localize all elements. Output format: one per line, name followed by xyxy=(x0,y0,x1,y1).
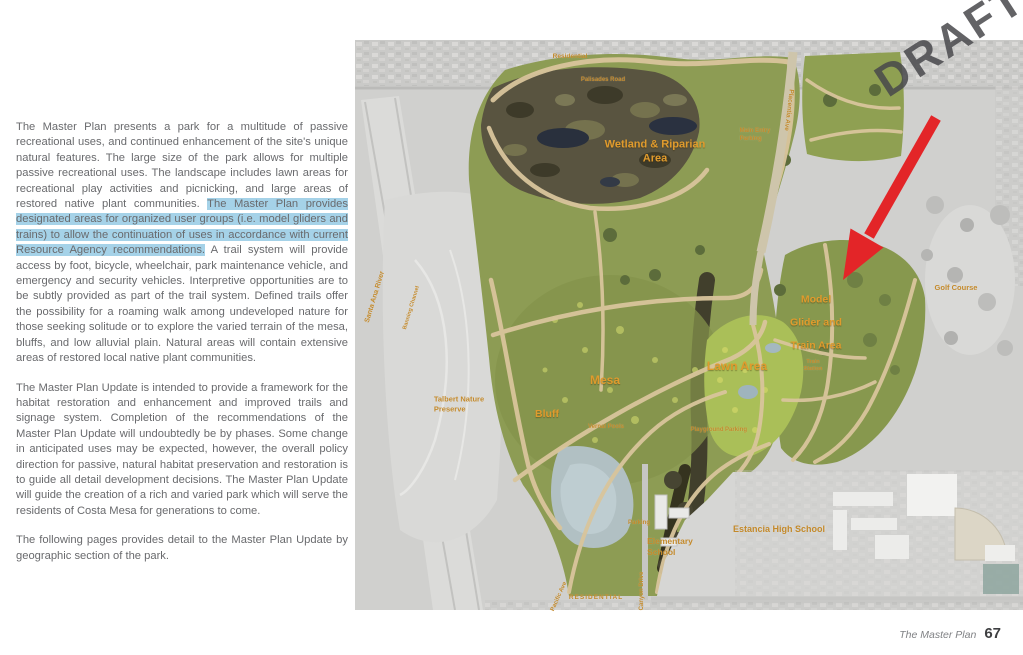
map-label-parking-south: Parking xyxy=(628,520,650,528)
map-label-pacific-ave: Pacific Ave xyxy=(550,581,570,613)
map-label-model-glider-train-area: Model Glider and Train Area xyxy=(790,288,842,357)
map-label-golf-course: Golf Course xyxy=(935,283,978,293)
map-label-banning-channel: Banning Channel xyxy=(402,285,422,330)
map-label-train-station: Train Station xyxy=(804,359,823,373)
map-label-bluff: Bluff xyxy=(535,408,559,422)
page-footer: The Master Plan 67 xyxy=(899,625,1001,642)
map-label-vernal-pools: Vernal Pools xyxy=(588,424,624,432)
paragraph-3: The following pages provides detail to t… xyxy=(16,533,348,564)
map-labels-layer: ResidentialPalisades RoadPlacentia AveMa… xyxy=(355,40,1023,610)
p1-text-after-highlight: A trail system will provide access by fo… xyxy=(16,244,348,364)
footer-section-label: The Master Plan xyxy=(899,629,976,641)
document-page: The Master Plan presents a park for a mu… xyxy=(0,0,1023,655)
map-label-talbert-nature-preserve: Talbert Nature Preserve xyxy=(434,394,484,414)
p1-text-before-highlight: The Master Plan presents a park for a mu… xyxy=(16,121,348,210)
map-label-santa-ana-river: Santa Ana River xyxy=(363,270,387,324)
map-label-residential-north: Residential xyxy=(553,53,588,61)
map-label-placentia-ave: Placentia Ave xyxy=(781,89,794,132)
map-label-playground: Playground xyxy=(690,427,723,435)
map-label-elementary-school: Elementary School xyxy=(647,536,693,558)
map-label-mesa: Mesa xyxy=(590,373,620,389)
map-label-residential-south: RESIDENTIAL xyxy=(569,594,623,602)
map-label-estancia-high-school: Estancia High School xyxy=(733,524,825,536)
map-label-canyon-drive: Canyon Drive xyxy=(639,572,647,611)
map-label-wetland-riparian-area: Wetland & Riparian Area xyxy=(605,138,706,167)
map-label-main-entry-parking: Main Entry Parking xyxy=(740,128,771,144)
park-master-plan-map: ResidentialPalisades RoadPlacentia AveMa… xyxy=(355,40,1023,610)
paragraph-2: The Master Plan Update is intended to pr… xyxy=(16,381,348,520)
map-label-palisades-road: Palisades Road xyxy=(581,77,625,85)
page-number: 67 xyxy=(984,625,1001,642)
map-label-lawn-area: Lawn Area xyxy=(707,359,767,375)
body-text-column: The Master Plan presents a park for a mu… xyxy=(16,120,348,578)
map-label-parking-lawn: Parking xyxy=(725,427,747,435)
paragraph-1: The Master Plan presents a park for a mu… xyxy=(16,120,348,367)
